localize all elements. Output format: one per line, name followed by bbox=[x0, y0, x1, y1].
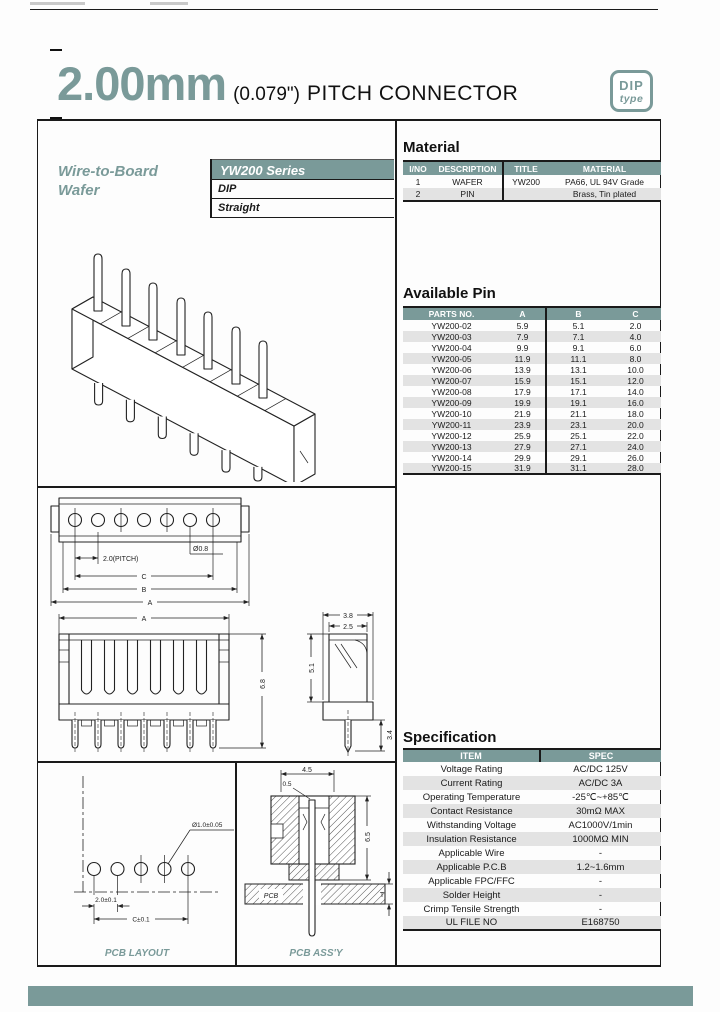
table-row: Solder Height- bbox=[403, 888, 661, 902]
table-cell: 4.0 bbox=[610, 331, 661, 342]
table-cell: E168750 bbox=[540, 916, 661, 930]
col-header-item: ITEM bbox=[403, 749, 540, 762]
table-header-row: PARTS NO. A B C bbox=[403, 307, 661, 320]
table-row: YW200-1429.929.126.0 bbox=[403, 452, 661, 463]
category-label: Wire-to-Board Wafer bbox=[58, 162, 158, 200]
col-header-description: DESCRIPTION bbox=[433, 161, 503, 175]
series-title: YW200 Series bbox=[212, 159, 394, 180]
badge-type-label: type bbox=[613, 93, 650, 105]
datasheet-page: 2.00mm (0.079") PITCH CONNECTOR DIP type… bbox=[0, 0, 720, 1012]
table-cell: WAFER bbox=[433, 175, 503, 188]
table-cell: Applicable FPC/FFC bbox=[403, 874, 540, 888]
table-cell: 7.9 bbox=[500, 331, 546, 342]
table-cell: 11.9 bbox=[500, 353, 546, 364]
table-cell: 27.9 bbox=[500, 441, 546, 452]
col-header-parts-no: PARTS NO. bbox=[403, 307, 500, 320]
table-row: YW200-037.97.14.0 bbox=[403, 331, 661, 342]
table-cell: 25.9 bbox=[500, 430, 546, 441]
table-cell: Withstanding Voltage bbox=[403, 818, 540, 832]
dim-a-label: A bbox=[148, 600, 153, 607]
table-cell bbox=[503, 188, 548, 201]
table-cell: PIN bbox=[433, 188, 503, 201]
table-row: YW200-049.99.16.0 bbox=[403, 342, 661, 353]
pcb-layout-drawing: Ø1.0±0.05 2.0±0.1 C±0.1 PCB LAYOUT bbox=[38, 764, 235, 965]
table-cell: PA66, UL 94V Grade bbox=[548, 175, 661, 188]
table-cell: 17.9 bbox=[500, 386, 546, 397]
available-pin-heading: Available Pin bbox=[403, 285, 496, 302]
assy-pcb-label: PCB bbox=[264, 893, 279, 900]
table-cell: YW200 bbox=[503, 175, 548, 188]
table-cell: UL FILE NO bbox=[403, 916, 540, 930]
table-row: YW200-1225.925.122.0 bbox=[403, 430, 661, 441]
spec-body: Voltage RatingAC/DC 125VCurrent RatingAC… bbox=[403, 762, 661, 930]
table-cell: 29.9 bbox=[500, 452, 546, 463]
table-cell: 7.1 bbox=[546, 331, 610, 342]
specification-table: ITEM SPEC Voltage RatingAC/DC 125VCurren… bbox=[403, 748, 661, 931]
table-cell: - bbox=[540, 846, 661, 860]
table-cell: 9.9 bbox=[500, 342, 546, 353]
table-cell: AC/DC 125V bbox=[540, 762, 661, 776]
pcb-assy-caption: PCB ASS'Y bbox=[289, 948, 343, 959]
col-header-b: B bbox=[546, 307, 610, 320]
table-cell: Insulation Resistance bbox=[403, 832, 540, 846]
table-header-row: ITEM SPEC bbox=[403, 749, 661, 762]
available-pin-body: YW200-025.95.12.0YW200-037.97.14.0YW200-… bbox=[403, 320, 661, 474]
print-artifact bbox=[30, 2, 85, 5]
table-cell: Current Rating bbox=[403, 776, 540, 790]
table-row: YW200-1327.927.124.0 bbox=[403, 441, 661, 452]
title-text: PITCH CONNECTOR bbox=[307, 82, 518, 106]
assy-dim-45-label: 4.5 bbox=[302, 767, 312, 774]
table-cell: 31.9 bbox=[500, 463, 546, 474]
table-cell: 25.1 bbox=[546, 430, 610, 441]
isometric-connector-drawing bbox=[45, 227, 390, 482]
dim-pitch-label: 2.0(PITCH) bbox=[103, 556, 138, 563]
table-cell: Crimp Tensile Strength bbox=[403, 902, 540, 916]
table-row: Current RatingAC/DC 3A bbox=[403, 776, 661, 790]
layout-pitch-label: 2.0±0.1 bbox=[95, 897, 117, 904]
table-cell: - bbox=[540, 874, 661, 888]
table-cell: 9.1 bbox=[546, 342, 610, 353]
table-cell: 1 bbox=[403, 175, 433, 188]
table-row: Applicable FPC/FFC- bbox=[403, 874, 661, 888]
table-cell: 27.1 bbox=[546, 441, 610, 452]
table-cell: YW200-08 bbox=[403, 386, 500, 397]
table-cell: Solder Height bbox=[403, 888, 540, 902]
table-cell: 5.1 bbox=[546, 320, 610, 331]
col-header-a: A bbox=[500, 307, 546, 320]
table-row: Insulation Resistance1000MΩ MIN bbox=[403, 832, 661, 846]
side-dim-25-label: 2.5 bbox=[343, 624, 353, 631]
table-cell: 8.0 bbox=[610, 353, 661, 364]
table-row: YW200-0511.911.18.0 bbox=[403, 353, 661, 364]
title-pitch-size: 2.00mm bbox=[57, 56, 226, 111]
divider bbox=[37, 761, 396, 763]
mount-type-label: DIP bbox=[212, 180, 394, 199]
table-cell: YW200-14 bbox=[403, 452, 500, 463]
table-cell: 31.1 bbox=[546, 463, 610, 474]
badge-dip-label: DIP bbox=[613, 78, 650, 93]
table-cell: Voltage Rating bbox=[403, 762, 540, 776]
table-row: 1WAFERYW200PA66, UL 94V Grade bbox=[403, 175, 661, 188]
col-header-material: MATERIAL bbox=[548, 161, 661, 175]
table-row: YW200-025.95.12.0 bbox=[403, 320, 661, 331]
table-row: 2PINBrass, Tin plated bbox=[403, 188, 661, 201]
table-cell: YW200-13 bbox=[403, 441, 500, 452]
table-cell: AC1000V/1min bbox=[540, 818, 661, 832]
table-cell: 23.1 bbox=[546, 419, 610, 430]
category-line1: Wire-to-Board bbox=[58, 162, 158, 181]
series-box: YW200 Series DIP Straight bbox=[210, 159, 394, 218]
table-cell: 11.1 bbox=[546, 353, 610, 364]
table-cell: 21.1 bbox=[546, 408, 610, 419]
assy-pin-dim-label: 0.5 bbox=[282, 781, 291, 788]
table-row: Operating Temperature-25℃~+85℃ bbox=[403, 790, 661, 804]
table-row: Contact Resistance30mΩ MAX bbox=[403, 804, 661, 818]
specification-heading: Specification bbox=[403, 729, 496, 746]
table-cell: 2 bbox=[403, 188, 433, 201]
table-row: Withstanding VoltageAC1000V/1min bbox=[403, 818, 661, 832]
table-cell: -25℃~+85℃ bbox=[540, 790, 661, 804]
table-row: Crimp Tensile Strength- bbox=[403, 902, 661, 916]
table-cell: YW200-11 bbox=[403, 419, 500, 430]
col-header-c: C bbox=[610, 307, 661, 320]
table-cell: 24.0 bbox=[610, 441, 661, 452]
front-side-view-drawing: A bbox=[37, 610, 395, 760]
dim-b-label: B bbox=[142, 587, 147, 594]
material-heading: Material bbox=[403, 139, 460, 156]
table-cell: 6.0 bbox=[610, 342, 661, 353]
table-cell: 5.9 bbox=[500, 320, 546, 331]
pcb-layout-caption: PCB LAYOUT bbox=[105, 948, 170, 959]
table-cell: Contact Resistance bbox=[403, 804, 540, 818]
table-cell: 1.2~1.6mm bbox=[540, 860, 661, 874]
table-cell: 2.0 bbox=[610, 320, 661, 331]
table-cell: 20.0 bbox=[610, 419, 661, 430]
title-inch: (0.079") bbox=[233, 84, 300, 106]
table-row: YW200-1123.923.120.0 bbox=[403, 419, 661, 430]
material-body: 1WAFERYW200PA66, UL 94V Grade2PINBrass, … bbox=[403, 175, 661, 201]
table-cell: 12.0 bbox=[610, 375, 661, 386]
table-cell: 16.0 bbox=[610, 397, 661, 408]
table-cell: 13.1 bbox=[546, 364, 610, 375]
table-cell: 26.0 bbox=[610, 452, 661, 463]
pcb-assembly-drawing: 0.5 4.5 6.5 T PCB PCB ASS'Y bbox=[237, 764, 395, 965]
category-line2: Wafer bbox=[58, 181, 158, 200]
col-header-spec: SPEC bbox=[540, 749, 661, 762]
footer-bar bbox=[28, 986, 693, 1006]
table-cell: Applicable P.C.B bbox=[403, 860, 540, 874]
table-cell: 15.9 bbox=[500, 375, 546, 386]
table-cell: - bbox=[540, 902, 661, 916]
table-cell: 17.1 bbox=[546, 386, 610, 397]
col-header-title: TITLE bbox=[503, 161, 548, 175]
table-row: YW200-0715.915.112.0 bbox=[403, 375, 661, 386]
dim-hole-label: Ø0.8 bbox=[193, 546, 208, 553]
dip-type-badge: DIP type bbox=[610, 70, 653, 112]
table-cell: 23.9 bbox=[500, 419, 546, 430]
header-underline bbox=[37, 119, 661, 121]
table-row: UL FILE NOE168750 bbox=[403, 916, 661, 930]
table-cell: 15.1 bbox=[546, 375, 610, 386]
dim-c-label: C bbox=[141, 574, 146, 581]
bottom-rule bbox=[37, 965, 661, 967]
table-cell: YW200-05 bbox=[403, 353, 500, 364]
layout-hole-label: Ø1.0±0.05 bbox=[192, 822, 223, 829]
page-title: 2.00mm (0.079") PITCH CONNECTOR bbox=[57, 56, 518, 111]
table-cell: 13.9 bbox=[500, 364, 546, 375]
table-cell: 19.9 bbox=[500, 397, 546, 408]
table-cell: YW200-04 bbox=[403, 342, 500, 353]
table-cell: YW200-10 bbox=[403, 408, 500, 419]
side-dim-38-label: 3.8 bbox=[343, 613, 353, 620]
orientation-label: Straight bbox=[212, 199, 394, 218]
table-cell: 1000MΩ MIN bbox=[540, 832, 661, 846]
table-cell: AC/DC 3A bbox=[540, 776, 661, 790]
table-cell: - bbox=[540, 888, 661, 902]
top-view-drawing: 2.0(PITCH) Ø0.8 C B A bbox=[37, 488, 395, 608]
front-dim-height-label: 6.8 bbox=[260, 679, 267, 689]
crop-tick bbox=[50, 49, 62, 51]
table-cell: YW200-06 bbox=[403, 364, 500, 375]
table-cell: 29.1 bbox=[546, 452, 610, 463]
table-cell: 18.0 bbox=[610, 408, 661, 419]
table-cell: YW200-07 bbox=[403, 375, 500, 386]
column-divider bbox=[395, 119, 397, 967]
table-cell: 21.9 bbox=[500, 408, 546, 419]
table-row: Voltage RatingAC/DC 125V bbox=[403, 762, 661, 776]
table-cell: YW200-03 bbox=[403, 331, 500, 342]
table-cell: Operating Temperature bbox=[403, 790, 540, 804]
table-cell: 30mΩ MAX bbox=[540, 804, 661, 818]
table-row: YW200-1021.921.118.0 bbox=[403, 408, 661, 419]
table-cell: Brass, Tin plated bbox=[548, 188, 661, 201]
table-row: YW200-0613.913.110.0 bbox=[403, 364, 661, 375]
table-row: Applicable Wire- bbox=[403, 846, 661, 860]
table-header-row: I/NO DESCRIPTION TITLE MATERIAL bbox=[403, 161, 661, 175]
table-cell: 14.0 bbox=[610, 386, 661, 397]
material-table: I/NO DESCRIPTION TITLE MATERIAL 1WAFERYW… bbox=[403, 160, 661, 202]
print-artifact bbox=[150, 2, 188, 5]
front-dim-a-label: A bbox=[142, 616, 147, 623]
table-row: YW200-0817.917.114.0 bbox=[403, 386, 661, 397]
table-cell: 19.1 bbox=[546, 397, 610, 408]
table-cell: Applicable Wire bbox=[403, 846, 540, 860]
table-cell: YW200-15 bbox=[403, 463, 500, 474]
table-row: YW200-0919.919.116.0 bbox=[403, 397, 661, 408]
table-cell: YW200-12 bbox=[403, 430, 500, 441]
table-cell: YW200-02 bbox=[403, 320, 500, 331]
available-pin-table: PARTS NO. A B C YW200-025.95.12.0YW200-0… bbox=[403, 306, 661, 475]
side-dim-51-label: 5.1 bbox=[309, 663, 316, 673]
col-header-ino: I/NO bbox=[403, 161, 433, 175]
table-cell: 10.0 bbox=[610, 364, 661, 375]
layout-span-label: C±0.1 bbox=[132, 917, 150, 924]
table-row: Applicable P.C.B1.2~1.6mm bbox=[403, 860, 661, 874]
assy-dim-65-label: 6.5 bbox=[365, 832, 372, 842]
table-row: YW200-1531.931.128.0 bbox=[403, 463, 661, 474]
table-cell: YW200-09 bbox=[403, 397, 500, 408]
top-rule-divider bbox=[30, 9, 658, 10]
table-cell: 28.0 bbox=[610, 463, 661, 474]
side-dim-34-label: 3.4 bbox=[387, 730, 394, 740]
table-cell: 22.0 bbox=[610, 430, 661, 441]
assy-dim-t-label: T bbox=[380, 892, 385, 899]
